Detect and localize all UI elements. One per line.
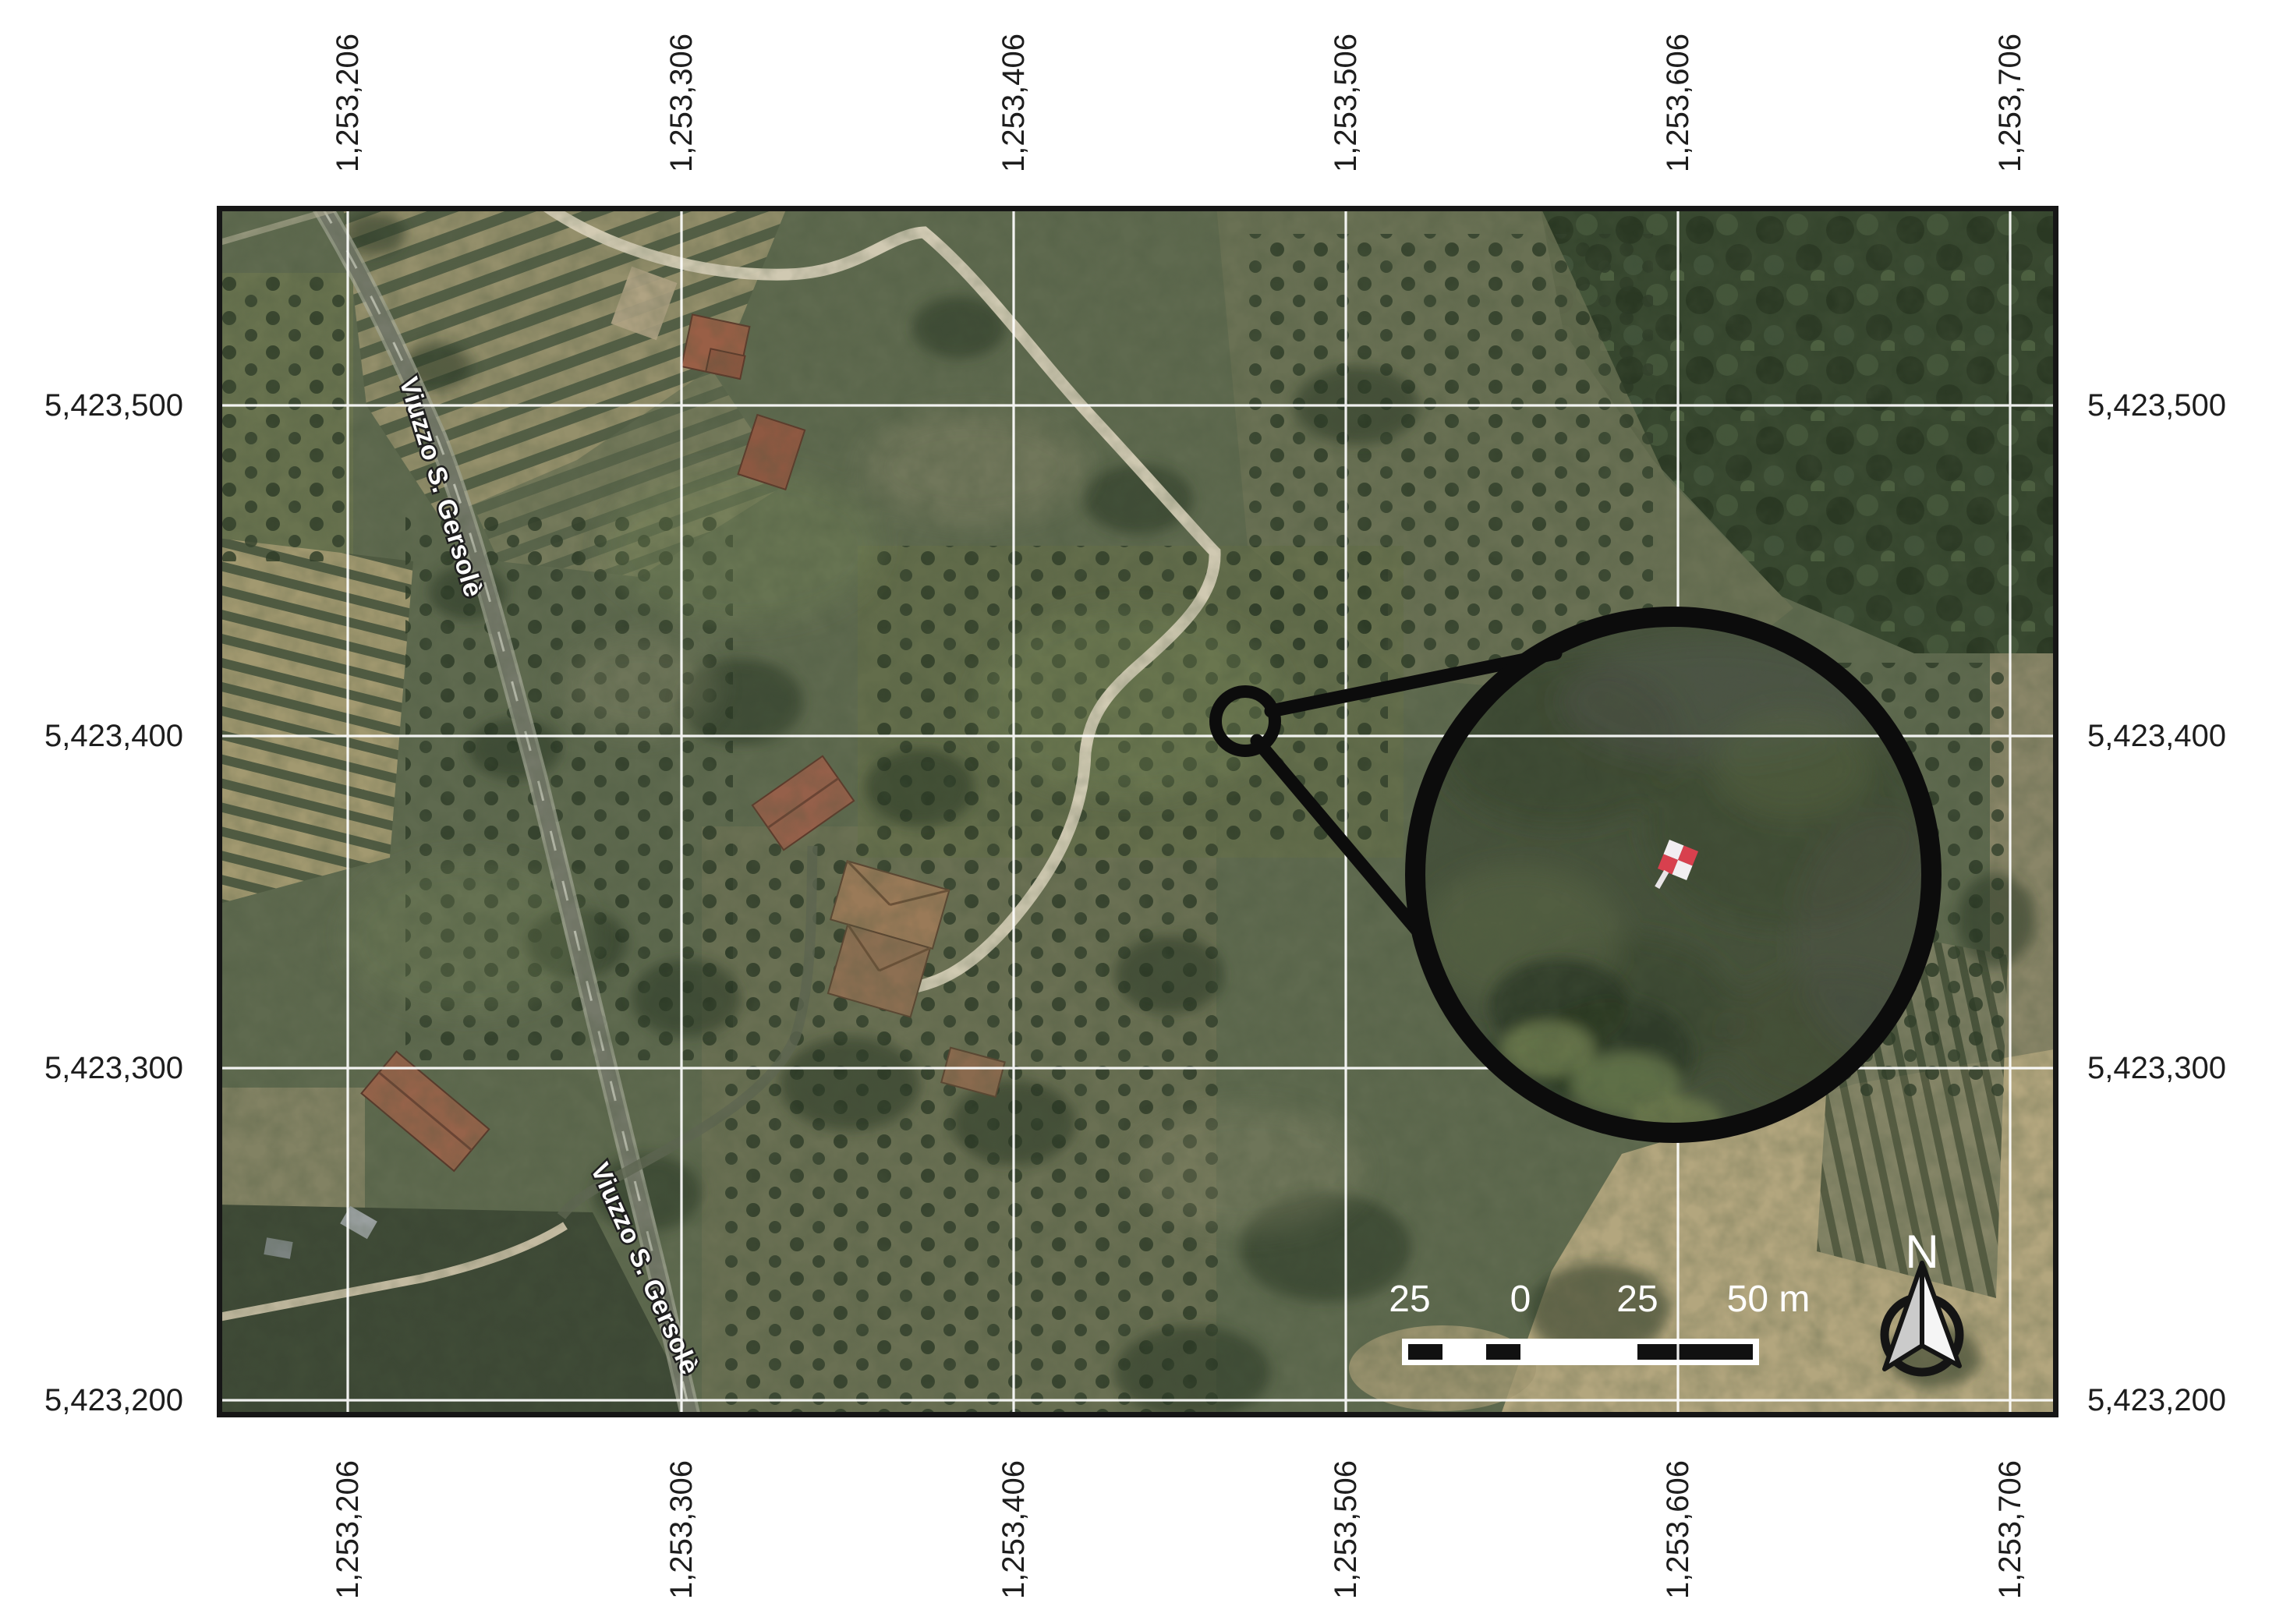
- scale-bar-label-3: 50 m: [1727, 1279, 1811, 1320]
- right-axis-tick-2: 5,423,300: [2087, 1052, 2267, 1084]
- bottom-axis-tick-4: 1,253,606: [1662, 1444, 1694, 1615]
- scale-bar-label-2: 25: [1616, 1279, 1658, 1320]
- map-figure: 1,253,206 1,253,306 1,253,406 1,253,506 …: [0, 0, 2269, 1624]
- top-axis-tick-0: 1,253,206: [331, 17, 364, 189]
- right-axis-tick-0: 5,423,500: [2087, 389, 2267, 422]
- left-axis-tick-0: 5,423,500: [12, 389, 183, 422]
- bottom-axis-tick-0: 1,253,206: [331, 1444, 364, 1615]
- scale-bar-label-0: 25: [1389, 1279, 1430, 1320]
- satellite-imagery: Viuzzo S. Gersolè Viuzzo S. Gersolè 25 0…: [217, 206, 2058, 1417]
- scale-bar-seg: [1408, 1344, 1442, 1360]
- top-axis-tick-1: 1,253,306: [665, 17, 698, 189]
- left-axis-tick-3: 5,423,200: [12, 1384, 183, 1417]
- bottom-axis-tick-1: 1,253,306: [665, 1444, 698, 1615]
- top-axis-tick-4: 1,253,606: [1662, 17, 1694, 189]
- left-axis-tick-2: 5,423,300: [12, 1052, 183, 1084]
- top-axis-tick-2: 1,253,406: [997, 17, 1030, 189]
- right-axis-tick-1: 5,423,400: [2087, 720, 2267, 752]
- left-axis-tick-1: 5,423,400: [12, 720, 183, 752]
- right-axis-tick-3: 5,423,200: [2087, 1384, 2267, 1417]
- scale-bar-label-1: 0: [1510, 1279, 1531, 1320]
- bottom-axis-tick-5: 1,253,706: [1994, 1444, 2027, 1615]
- top-axis-tick-5: 1,253,706: [1994, 17, 2027, 189]
- bottom-axis-tick-3: 1,253,506: [1329, 1444, 1362, 1615]
- scale-bar-seg: [1637, 1344, 1753, 1360]
- scale-bar-seg: [1486, 1344, 1520, 1360]
- north-arrow-label: N: [1905, 1226, 1938, 1278]
- bottom-axis-tick-2: 1,253,406: [997, 1444, 1030, 1615]
- top-axis-tick-3: 1,253,506: [1329, 17, 1362, 189]
- map-canvas: Viuzzo S. Gersolè Viuzzo S. Gersolè 25 0…: [217, 206, 2058, 1417]
